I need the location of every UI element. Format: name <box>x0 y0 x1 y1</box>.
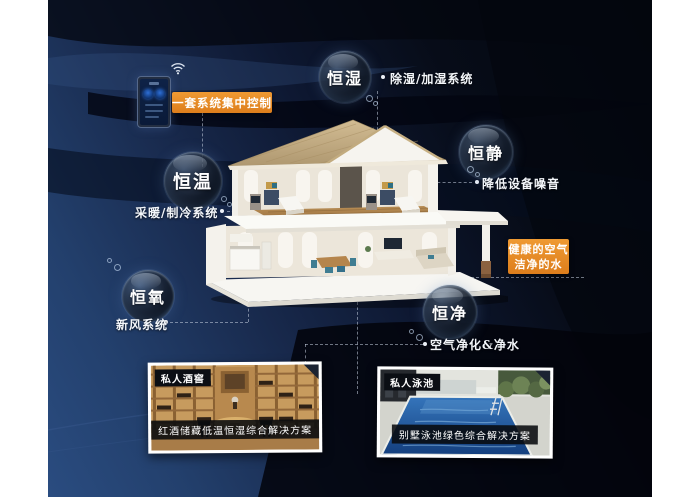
label-quiet-system: 降低设备噪音 <box>482 175 560 192</box>
callout-central-control: 一套系统集中控制 <box>172 92 272 113</box>
mini-bubble <box>467 166 474 173</box>
phone-app-screen <box>140 79 168 125</box>
label-purity-system: 空气净化&净水 <box>430 336 520 353</box>
corner-fold <box>535 370 550 385</box>
phone-topbar <box>149 82 159 85</box>
wifi-icon <box>170 61 186 75</box>
wine-cellar-image: 私人酒窖 红酒储藏低温恒湿综合解决方案 <box>151 364 320 450</box>
photo-pool: 私人泳池 别墅泳池绿色综合解决方案 <box>377 366 554 458</box>
bubble-constant-purity: 恒净 <box>423 285 477 339</box>
pool-image: 私人泳池 别墅泳池绿色综合解决方案 <box>380 369 551 455</box>
bubble-constant-oxygen: 恒氧 <box>122 270 174 322</box>
bubble-temperature-label: 恒温 <box>173 168 213 194</box>
corner-fold <box>304 364 319 379</box>
knob-icon <box>143 89 153 99</box>
connector-to-pool-photo <box>357 302 358 394</box>
pool-tag: 私人泳池 <box>384 373 440 390</box>
connector-dot-humidity <box>381 75 385 79</box>
scene-canvas: 一套系统集中控制 恒湿 除湿/加湿系统 恒静 降低设备噪音 恒温 采暖/制冷系统… <box>48 0 652 497</box>
pool-caption: 别墅泳池绿色综合解决方案 <box>392 424 538 444</box>
connector-dot-purity <box>423 342 427 346</box>
bubble-quiet-label: 恒静 <box>468 140 504 164</box>
mini-bubble <box>416 334 423 341</box>
bubble-oxygen-label: 恒氧 <box>130 284 166 308</box>
wine-cellar-tag: 私人酒窖 <box>155 369 211 386</box>
phone-row <box>145 116 159 118</box>
connector-oxygen <box>170 322 248 323</box>
mini-bubble <box>366 95 373 102</box>
phone-control-knobs <box>142 88 166 100</box>
bubble-humidity-label: 恒湿 <box>327 65 363 89</box>
label-humidity-system: 除湿/加湿系统 <box>390 70 473 87</box>
callout-air-line: 健康的空气 <box>509 242 569 257</box>
bubble-purity-label: 恒净 <box>432 300 468 324</box>
central-control-label: 一套系统集中控制 <box>172 95 272 111</box>
infographic-stage: 一套系统集中控制 恒湿 除湿/加湿系统 恒静 降低设备噪音 恒温 采暖/制冷系统… <box>0 0 700 497</box>
bubble-constant-temperature: 恒温 <box>164 152 222 210</box>
mini-bubble <box>227 202 232 207</box>
mini-bubble <box>221 196 227 202</box>
bubble-constant-humidity: 恒湿 <box>319 51 371 103</box>
label-temperature-system: 采暖/制冷系统 <box>135 204 218 221</box>
mini-bubble <box>409 329 414 334</box>
callout-air-water: 健康的空气 洁净的水 <box>508 239 569 274</box>
mini-bubble <box>373 101 378 106</box>
label-oxygen-system: 新风系统 <box>116 316 168 333</box>
smartphone <box>137 76 171 128</box>
mini-bubble <box>114 264 121 271</box>
mini-bubble <box>475 172 480 177</box>
mini-bubble <box>107 258 112 263</box>
knob-icon <box>155 89 165 99</box>
photo-wine-cellar: 私人酒窖 红酒储藏低温恒湿综合解决方案 <box>148 361 323 453</box>
phone-row <box>145 110 163 112</box>
phone-row <box>145 104 163 106</box>
wine-cellar-caption: 红酒储藏低温恒湿综合解决方案 <box>151 419 319 439</box>
callout-water-line: 洁净的水 <box>515 257 563 272</box>
connector-purity <box>305 344 423 345</box>
